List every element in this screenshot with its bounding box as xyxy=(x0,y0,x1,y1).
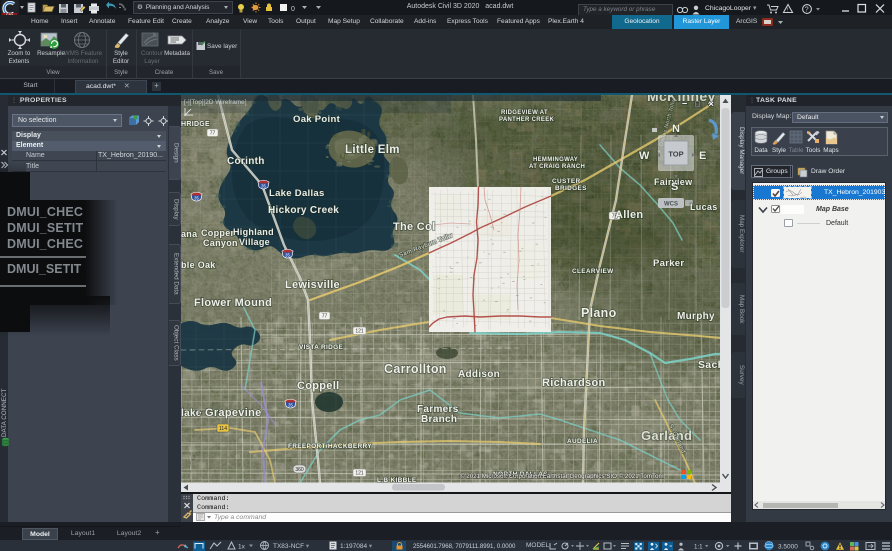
svg-text:AT CRAIG RANCH: AT CRAIG RANCH xyxy=(529,164,585,170)
svg-text:© 2021 Microsoft Corporation E: © 2021 Microsoft Corporation Earthstar G… xyxy=(460,473,664,480)
svg-text:Little Elm: Little Elm xyxy=(345,144,400,156)
svg-text:Lake Dallas: Lake Dallas xyxy=(269,188,325,199)
svg-text:Village: Village xyxy=(239,237,270,247)
svg-text:TOP: TOP xyxy=(668,150,683,159)
svg-text:1x: 1x xyxy=(238,544,246,551)
svg-text:Coppell: Coppell xyxy=(297,380,339,392)
svg-text:□: □ xyxy=(695,100,700,109)
svg-text:Highland: Highland xyxy=(233,227,274,237)
svg-text:ble Oak: ble Oak xyxy=(181,260,216,270)
svg-text:✕: ✕ xyxy=(708,100,714,109)
svg-text:PANTHER CREEK: PANTHER CREEK xyxy=(499,117,554,123)
svg-text:BRIDGES: BRIDGES xyxy=(555,185,587,192)
svg-text:The Col: The Col xyxy=(393,221,435,233)
svg-text:121: 121 xyxy=(355,471,364,477)
svg-text:CUSTER: CUSTER xyxy=(552,178,581,185)
svg-text:77: 77 xyxy=(210,131,216,137)
svg-text:Addison: Addison xyxy=(458,369,500,380)
svg-text:114: 114 xyxy=(219,426,227,432)
svg-text:AUDELIA: AUDELIA xyxy=(567,438,598,445)
svg-text:N: N xyxy=(672,123,680,135)
svg-text:Corinth: Corinth xyxy=(227,156,265,167)
svg-text:Hickory Creek: Hickory Creek xyxy=(268,205,339,216)
svg-text:Murphy: Murphy xyxy=(677,311,715,322)
svg-text:Richardson: Richardson xyxy=(542,377,606,389)
svg-text:WCS: WCS xyxy=(664,202,678,208)
svg-text:35: 35 xyxy=(285,253,290,258)
svg-text:VISTA RIDGE: VISTA RIDGE xyxy=(299,344,343,351)
svg-text:0: 0 xyxy=(291,6,295,13)
svg-text:Oak Point: Oak Point xyxy=(293,114,341,125)
svg-text:RIDGEVIEW AT: RIDGEVIEW AT xyxy=(501,110,548,116)
svg-text:Plano: Plano xyxy=(581,306,617,320)
svg-text:Carrollton: Carrollton xyxy=(384,362,447,376)
svg-text:HRIDGE: HRIDGE xyxy=(181,121,210,128)
svg-text:Flower Mound: Flower Mound xyxy=(194,297,272,309)
svg-text:Branch: Branch xyxy=(421,414,457,425)
svg-text:Copper: Copper xyxy=(201,228,234,238)
svg-text:E: E xyxy=(699,150,707,162)
svg-text:ana: ana xyxy=(181,229,198,239)
svg-text:Grapevine: Grapevine xyxy=(205,407,262,419)
svg-text:Lucas: Lucas xyxy=(690,202,718,212)
svg-text:1:1: 1:1 xyxy=(694,543,703,550)
svg-text:3.5000: 3.5000 xyxy=(778,543,798,550)
svg-text:?: ? xyxy=(805,7,809,14)
svg-text:35: 35 xyxy=(261,184,266,189)
svg-text:W: W xyxy=(639,150,650,162)
svg-text:HEMMINGWAY: HEMMINGWAY xyxy=(533,157,578,163)
svg-text:·: · xyxy=(199,408,203,419)
svg-text:CLEARVIEW: CLEARVIEW xyxy=(572,268,614,275)
svg-text:35: 35 xyxy=(288,403,293,408)
svg-text:–: – xyxy=(682,98,687,109)
svg-text:S: S xyxy=(671,181,679,193)
svg-text:77: 77 xyxy=(322,314,328,320)
svg-text:360: 360 xyxy=(295,467,304,473)
svg-text:FREEPORT/HACKBERRY: FREEPORT/HACKBERRY xyxy=(288,443,372,450)
svg-text:Canyon: Canyon xyxy=(203,238,238,248)
svg-text:[-][Top][2D Wireframe]: [-][Top][2D Wireframe] xyxy=(184,99,247,106)
svg-text:121: 121 xyxy=(355,329,364,335)
svg-text:Parker: Parker xyxy=(653,258,684,269)
svg-text:Allen: Allen xyxy=(615,209,643,221)
svg-text:Garland: Garland xyxy=(641,428,692,443)
svg-text:Lewisville: Lewisville xyxy=(285,279,340,291)
svg-text:35: 35 xyxy=(194,196,199,201)
